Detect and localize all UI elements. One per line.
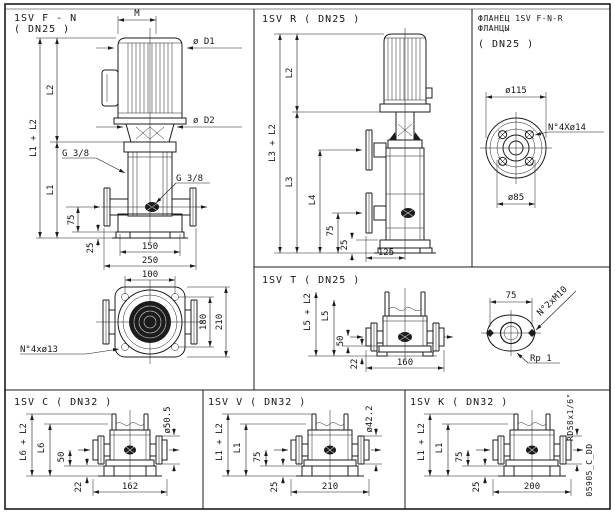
dim-l4: L4 (308, 195, 318, 206)
dim-l1-plus-l2: L1 + L2 (29, 119, 39, 157)
dim-75: 75 (455, 452, 465, 463)
dim-m: M (134, 9, 140, 19)
panel-c-title: 1SV C ( DN32 ) (14, 397, 112, 408)
round-flange-figure (480, 112, 552, 184)
drawing-canvas: 1SV F - N ( DN25 ) (0, 0, 615, 513)
dim-oval-75: 75 (506, 291, 517, 301)
dim-l6: L6 (37, 443, 47, 454)
dim-l2: L2 (285, 68, 295, 79)
v-dimensions: L1 + L2 L1 75 25 210 ø42.2 (215, 405, 382, 496)
dim-l1-plus-l2: L1 + L2 (215, 423, 225, 461)
dim-25: 25 (340, 240, 350, 251)
dim-25: 25 (270, 482, 280, 493)
k-dimensions: L1 + L2 L1 75 25 200 RD58x1/6" (417, 393, 582, 496)
technical-drawing-sheet: 1SV F - N ( DN25 ) (0, 0, 615, 513)
dim-l1: L1 (435, 443, 445, 454)
label-oval-holes: N°2xM10 (535, 285, 569, 319)
lower-port-flange (366, 193, 386, 233)
dim-l1-plus-l2: L1 + L2 (417, 423, 427, 461)
panel-fn-title: 1SV F - N (14, 13, 77, 24)
dim-100: 100 (142, 270, 158, 280)
dim-162: 162 (122, 482, 138, 492)
dim-l1: L1 (46, 185, 56, 196)
dim-od-50-5: ø50.5 (163, 406, 173, 433)
pump-t-view-figure (350, 288, 453, 360)
dim-d115: ø115 (505, 86, 527, 96)
panel-v-title: 1SV V ( DN32 ) (208, 397, 306, 408)
label-rp1: Rp 1 (530, 354, 552, 364)
dim-l3: L3 (285, 177, 295, 188)
dim-l1: L1 (233, 443, 243, 454)
pump-side-view-figure (318, 28, 436, 260)
dim-d1: ø D1 (193, 37, 215, 47)
dim-75: 75 (253, 452, 263, 463)
pump-front-view-figure (66, 28, 207, 242)
motor-fins (388, 38, 420, 100)
dim-150: 150 (142, 242, 158, 252)
panel-1sv-c: 1SV C ( DN32 ) (14, 397, 180, 496)
t-left-flange (366, 323, 383, 351)
dim-25: 25 (472, 482, 482, 493)
panel-1sv-t: 1SV T ( DN25 ) (262, 275, 576, 372)
plan-view-dimensions: 100 180 210 N°4xø13 (20, 270, 230, 357)
t-right-flange (427, 323, 444, 351)
dim-od-42-2: ø42.2 (365, 405, 375, 432)
oval-flange-figure: 75 N°2xM10 Rp 1 (481, 285, 576, 364)
label-g38-right: G 3/8 (176, 174, 203, 184)
panel-r-title: 1SV R ( DN25 ) (262, 14, 360, 25)
dim-d2: ø D2 (193, 116, 215, 126)
dim-l2: L2 (46, 85, 56, 96)
panel-flange-fnr: ФЛАНЕЦ 1SV F-N-R ФЛАНЦЫ ( DN25 ) (478, 14, 604, 208)
panel-1sv-r: 1SV R ( DN25 ) (262, 14, 436, 262)
label-flange-holes: N°4Xø14 (548, 123, 586, 133)
dim-75: 75 (326, 226, 336, 237)
panel-fn-subtitle: ( DN25 ) (14, 24, 70, 35)
dim-210: 210 (322, 482, 338, 492)
panel-1sv-fn: 1SV F - N ( DN25 ) (14, 9, 242, 364)
dim-d85: ø85 (508, 193, 524, 203)
drawing-code: 05905_C_DD (585, 443, 594, 496)
dim-l5: L5 (321, 311, 331, 322)
dim-250: 250 (142, 256, 158, 266)
flange-title-line2: ФЛАНЦЫ (478, 24, 510, 33)
flange-title-line3: ( DN25 ) (478, 39, 534, 50)
label-g38-left: G 3/8 (62, 149, 89, 159)
terminal-box (102, 70, 118, 106)
dim-thread-rd58: RD58x1/6" (566, 393, 575, 441)
dim-50: 50 (336, 336, 346, 347)
dim-22: 22 (74, 482, 84, 493)
dim-l3-plus-l2: L3 + L2 (268, 124, 278, 162)
dim-200: 200 (524, 482, 540, 492)
panel-k-title: 1SV K ( DN32 ) (410, 397, 508, 408)
dim-75: 75 (67, 215, 77, 226)
label-base-holes: N°4xø13 (20, 345, 58, 355)
flange-title-line1: ФЛАНЕЦ 1SV F-N-R (478, 14, 563, 23)
dim-25: 25 (86, 243, 96, 254)
dim-210: 210 (215, 314, 225, 330)
panel-t-title: 1SV T ( DN25 ) (262, 275, 360, 286)
dim-180: 180 (199, 314, 209, 330)
panel-1sv-v: 1SV V ( DN32 ) (208, 397, 382, 496)
flange-dimensions: ø115 ø85 N°4Xø14 (486, 86, 604, 208)
dim-160: 160 (397, 358, 413, 368)
upper-port-flange (366, 130, 386, 170)
dim-125: 125 (378, 248, 394, 258)
dim-22: 22 (350, 359, 360, 370)
dim-50: 50 (57, 452, 67, 463)
panel-1sv-k: 1SV K ( DN32 ) (410, 393, 594, 497)
dim-l6-plus-l2: L6 + L2 (19, 423, 29, 461)
dim-l5-plus-l2: L5 + L2 (303, 293, 313, 331)
fn-dimensions: M ø D1 ø D2 L1 + L2 L2 L1 75 25 150 (29, 9, 242, 270)
pump-plan-view-figure (96, 280, 204, 364)
